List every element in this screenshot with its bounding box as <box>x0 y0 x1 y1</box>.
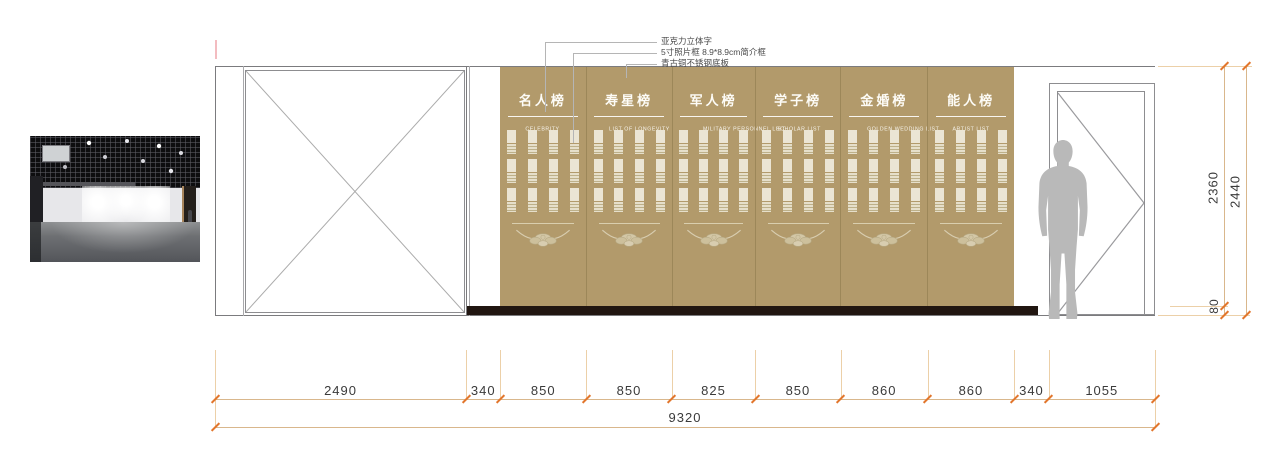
photo-slot <box>998 159 1007 172</box>
panel-title: 能人榜 <box>928 90 1014 109</box>
caption-plate <box>956 202 965 212</box>
photo-frame <box>804 159 813 183</box>
caption-plate <box>998 202 1007 212</box>
photo-slot <box>570 159 579 172</box>
caption-plate <box>699 202 708 212</box>
photo-frame <box>998 159 1007 183</box>
display-panel-3: 军人榜MILITARY PERSONNEL LIST <box>672 67 755 306</box>
caption-plate <box>890 173 899 183</box>
caption-plate <box>679 202 688 212</box>
photo-frame <box>679 159 688 183</box>
extension-line <box>1155 350 1156 427</box>
photo-frame <box>869 130 878 154</box>
photo-frame <box>635 130 644 154</box>
panel-title: 金婚榜 <box>841 90 927 109</box>
caption-plate <box>911 173 920 183</box>
panel-footer-rule <box>599 223 660 224</box>
caption-plate <box>614 202 623 212</box>
photo-slot <box>762 130 771 143</box>
panel-title-rule <box>508 116 578 117</box>
photo-frame <box>594 188 603 212</box>
caption-plate <box>911 202 920 212</box>
photo-slot <box>804 188 813 201</box>
segment-dimension-label: 860 <box>841 383 928 398</box>
photo-slot <box>783 188 792 201</box>
photo-slot <box>549 130 558 143</box>
photo-slot <box>977 159 986 172</box>
caption-plate <box>825 173 834 183</box>
segment-dimension-label: 850 <box>500 383 586 398</box>
photo-frame <box>656 188 665 212</box>
photo-frame <box>719 130 728 154</box>
photo-slot <box>762 159 771 172</box>
photo-frame <box>549 159 558 183</box>
photo-frame <box>977 130 986 154</box>
leader-line <box>626 64 627 78</box>
caption-plate <box>869 144 878 154</box>
caption-plate <box>679 144 688 154</box>
panel-subtitle: SCHOLAR LIST <box>756 119 841 130</box>
photo-frame <box>699 159 708 183</box>
wall-left-edge <box>215 66 216 316</box>
panel-subtitle: MILITARY PERSONNEL LIST <box>673 119 755 130</box>
leader-line <box>573 53 574 143</box>
caption-plate <box>635 173 644 183</box>
overall-dimension-line <box>215 427 1155 428</box>
panel-title-rule <box>680 116 747 117</box>
callout-acrylic-letters: 亚克力立体字 <box>661 37 712 46</box>
photo-slot <box>739 188 748 201</box>
photo-slot <box>679 159 688 172</box>
photo-slot <box>911 159 920 172</box>
stray-pink-mark <box>215 40 217 59</box>
photo-frame <box>719 188 728 212</box>
caption-plate <box>977 173 986 183</box>
photo-slot <box>804 130 813 143</box>
panel-footer-rule <box>512 223 574 224</box>
partition-line-a <box>466 66 467 316</box>
photo-frame <box>956 130 965 154</box>
photo-frame <box>594 130 603 154</box>
photo-slot <box>869 188 878 201</box>
photo-frame <box>679 130 688 154</box>
photo-frame <box>570 159 579 183</box>
photo-frame <box>911 130 920 154</box>
segment-dimension-label: 2490 <box>215 383 466 398</box>
caption-plate <box>635 202 644 212</box>
caption-plate <box>570 173 579 183</box>
caption-plate <box>804 202 813 212</box>
photo-slot <box>679 188 688 201</box>
caption-plate <box>825 144 834 154</box>
photo-slot <box>739 130 748 143</box>
photo-frame <box>804 188 813 212</box>
photo-slot <box>699 188 708 201</box>
photo-slot <box>528 159 537 172</box>
panel-footer-rule <box>768 223 829 224</box>
photo-slot <box>956 188 965 201</box>
photo-frame <box>956 159 965 183</box>
photo-frame <box>935 159 944 183</box>
photo-slot <box>699 159 708 172</box>
panel-photo-grid <box>679 130 748 213</box>
dimension-label-80: 80 <box>1207 291 1221 321</box>
photo-frame <box>890 159 899 183</box>
photo-frame <box>869 188 878 212</box>
floor-line <box>215 315 1155 316</box>
photo-frame <box>549 130 558 154</box>
photo-slot <box>869 159 878 172</box>
caption-plate <box>998 173 1007 183</box>
photo-slot <box>699 130 708 143</box>
caption-plate <box>528 144 537 154</box>
caption-plate <box>825 202 834 212</box>
photo-slot <box>614 130 623 143</box>
caption-plate <box>783 173 792 183</box>
photo-slot <box>656 130 665 143</box>
caption-plate <box>848 144 857 154</box>
caption-plate <box>594 173 603 183</box>
caption-plate <box>719 144 728 154</box>
photo-frame <box>762 130 771 154</box>
photo-slot <box>635 130 644 143</box>
baseboard-strip <box>467 306 1038 315</box>
photo-slot <box>890 130 899 143</box>
photo-wall-spotlights <box>82 186 170 222</box>
photo-frame <box>739 159 748 183</box>
caption-plate <box>848 202 857 212</box>
caption-plate <box>739 173 748 183</box>
photo-frame <box>935 130 944 154</box>
photo-slot <box>890 188 899 201</box>
photo-frame <box>570 130 579 154</box>
photo-slot <box>911 188 920 201</box>
photo-slot <box>570 188 579 201</box>
callout-bronze-plate: 青古铜不锈钢底板 <box>661 59 729 68</box>
photo-frame <box>699 130 708 154</box>
photo-slot <box>507 159 516 172</box>
caption-plate <box>956 144 965 154</box>
panel-footer-rule <box>940 223 1002 224</box>
cloud-ornament <box>515 226 571 247</box>
dimension-line-2360 <box>1224 66 1225 316</box>
caption-plate <box>977 202 986 212</box>
caption-plate <box>956 173 965 183</box>
caption-plate <box>570 202 579 212</box>
panel-title-rule <box>936 116 1006 117</box>
photo-slot <box>549 159 558 172</box>
photo-slot <box>614 188 623 201</box>
caption-plate <box>507 144 516 154</box>
panel-subtitle: GOLDEN WEDDING LIST <box>841 119 927 130</box>
elevation-sheet: 名人榜CELEBRITY寿星榜LIST OF LONGEVITY军人榜MILIT… <box>0 0 1280 456</box>
segment-dimension-label: 340 <box>466 383 500 398</box>
panel-title-rule <box>849 116 919 117</box>
photo-slot <box>635 188 644 201</box>
caption-plate <box>890 144 899 154</box>
photo-frame <box>825 130 834 154</box>
photo-slot <box>911 130 920 143</box>
photo-floor <box>30 222 200 262</box>
extension-line <box>1158 315 1250 316</box>
caption-plate <box>890 202 899 212</box>
photo-slot <box>783 159 792 172</box>
caption-plate <box>507 202 516 212</box>
callout-photo-frame: 5寸照片框 8.9*8.9cm简介框 <box>661 48 766 57</box>
photo-frame <box>528 159 537 183</box>
photo-slot <box>935 159 944 172</box>
photo-slot <box>528 130 537 143</box>
photo-frame <box>935 188 944 212</box>
photo-slot <box>998 130 1007 143</box>
panel-footer-rule <box>853 223 915 224</box>
panel-title: 学子榜 <box>756 90 841 109</box>
photo-frame <box>762 159 771 183</box>
photo-frame <box>507 159 516 183</box>
photo-frame <box>635 188 644 212</box>
caption-plate <box>783 144 792 154</box>
caption-plate <box>507 173 516 183</box>
segment-dimension-label: 850 <box>755 383 841 398</box>
caption-plate <box>699 144 708 154</box>
site-photo <box>30 136 200 262</box>
photo-frame <box>783 130 792 154</box>
photo-slot <box>656 188 665 201</box>
caption-plate <box>570 144 579 154</box>
caption-plate <box>935 173 944 183</box>
photo-frame <box>699 188 708 212</box>
cloud-ornament <box>770 226 826 247</box>
photo-frame <box>739 188 748 212</box>
photo-slot <box>762 188 771 201</box>
caption-plate <box>783 202 792 212</box>
photo-frame <box>998 188 1007 212</box>
photo-slot <box>956 130 965 143</box>
photo-frame <box>911 159 920 183</box>
caption-plate <box>911 144 920 154</box>
caption-plate <box>528 202 537 212</box>
photo-person <box>188 210 192 222</box>
display-panel-6: 能人榜ARTIST LIST <box>927 67 1014 306</box>
panel-subtitle: LIST OF LONGEVITY <box>587 119 672 130</box>
caption-plate <box>762 144 771 154</box>
photo-slot <box>890 159 899 172</box>
leader-line <box>573 53 657 54</box>
cloud-ornament <box>856 226 912 247</box>
panel-photo-grid <box>762 130 833 213</box>
photo-slot <box>783 130 792 143</box>
caption-plate <box>719 173 728 183</box>
photo-frame <box>848 130 857 154</box>
caption-plate <box>762 202 771 212</box>
caption-plate <box>594 202 603 212</box>
photo-grid-ceiling <box>30 136 200 188</box>
left-column-line <box>243 66 244 316</box>
display-panel-4: 学子榜SCHOLAR LIST <box>755 67 841 306</box>
segment-dimension-label: 860 <box>928 383 1015 398</box>
photo-slot <box>570 130 579 143</box>
photo-frame <box>614 188 623 212</box>
photo-frame <box>804 130 813 154</box>
segment-dimension-label: 825 <box>672 383 755 398</box>
photo-frame <box>956 188 965 212</box>
caption-plate <box>699 173 708 183</box>
photo-slot <box>848 159 857 172</box>
caption-plate <box>935 144 944 154</box>
segment-dimension-label: 850 <box>586 383 672 398</box>
photo-frame <box>890 188 899 212</box>
photo-frame <box>783 188 792 212</box>
photo-floor-shadow <box>30 222 41 262</box>
crossed-out-panel <box>245 70 465 313</box>
photo-slot <box>935 188 944 201</box>
caption-plate <box>739 144 748 154</box>
photo-slot <box>679 130 688 143</box>
caption-plate <box>869 173 878 183</box>
cloud-ornament <box>601 226 657 247</box>
leader-line <box>545 42 657 43</box>
photo-frame <box>635 159 644 183</box>
display-panel-2: 寿星榜LIST OF LONGEVITY <box>586 67 672 306</box>
photo-slot <box>719 188 728 201</box>
panel-title-rule <box>763 116 832 117</box>
photo-ceiling-lights <box>30 136 32 138</box>
cross-lines <box>246 71 464 312</box>
photo-slot <box>998 188 1007 201</box>
photo-slot <box>825 159 834 172</box>
photo-slot <box>935 130 944 143</box>
photo-slot <box>594 130 603 143</box>
photo-frame <box>825 188 834 212</box>
photo-frame <box>656 159 665 183</box>
photo-slot <box>594 188 603 201</box>
photo-dark-opening <box>30 176 43 222</box>
photo-slot <box>869 130 878 143</box>
panel-photo-grid <box>507 130 579 213</box>
display-wall: 名人榜CELEBRITY寿星榜LIST OF LONGEVITY军人榜MILIT… <box>500 67 1014 306</box>
caption-plate <box>549 144 558 154</box>
photo-frame <box>825 159 834 183</box>
panel-title: 寿星榜 <box>587 90 672 109</box>
photo-slot <box>739 159 748 172</box>
photo-frame <box>507 188 516 212</box>
panel-title-rule <box>594 116 663 117</box>
photo-frame <box>783 159 792 183</box>
photo-frame <box>739 130 748 154</box>
photo-frame <box>848 159 857 183</box>
caption-plate <box>804 173 813 183</box>
photo-slot <box>507 188 516 201</box>
caption-plate <box>549 202 558 212</box>
caption-plate <box>739 202 748 212</box>
caption-plate <box>656 144 665 154</box>
photo-frame <box>869 159 878 183</box>
photo-slot <box>956 159 965 172</box>
dimension-label-2440: 2440 <box>1228 162 1243 222</box>
caption-plate <box>762 173 771 183</box>
caption-plate <box>614 144 623 154</box>
photo-slot <box>977 188 986 201</box>
cloud-ornament <box>686 226 742 247</box>
caption-plate <box>656 202 665 212</box>
photo-slot <box>507 130 516 143</box>
caption-plate <box>679 173 688 183</box>
photo-frame <box>528 188 537 212</box>
photo-frame <box>679 188 688 212</box>
photo-frame <box>848 188 857 212</box>
extension-line <box>1158 66 1252 67</box>
photo-slot <box>635 159 644 172</box>
photo-frame <box>570 188 579 212</box>
photo-ac-vent <box>42 145 70 162</box>
panel-title: 军人榜 <box>673 90 755 109</box>
photo-slot <box>977 130 986 143</box>
leader-line <box>626 64 657 65</box>
caption-plate <box>594 144 603 154</box>
photo-slot <box>719 159 728 172</box>
panel-photo-grid <box>594 130 665 213</box>
photo-frame <box>528 130 537 154</box>
leader-line <box>545 42 546 112</box>
caption-plate <box>977 144 986 154</box>
segment-dimension-label: 1055 <box>1049 383 1155 398</box>
photo-slot <box>594 159 603 172</box>
photo-doorway <box>182 186 196 223</box>
partition-line-b <box>469 66 470 316</box>
total-dimension-label: 9320 <box>215 410 1155 425</box>
panel-footer-rule <box>684 223 743 224</box>
photo-frame <box>762 188 771 212</box>
panel-subtitle: ARTIST LIST <box>928 119 1014 130</box>
dimension-label-2360: 2360 <box>1206 158 1221 218</box>
photo-frame <box>594 159 603 183</box>
caption-plate <box>549 173 558 183</box>
cloud-ornament <box>943 226 999 247</box>
photo-frame <box>977 159 986 183</box>
caption-plate <box>614 173 623 183</box>
photo-slot <box>804 159 813 172</box>
photo-slot <box>848 130 857 143</box>
photo-frame <box>549 188 558 212</box>
caption-plate <box>869 202 878 212</box>
photo-slot <box>825 188 834 201</box>
photo-frame <box>614 130 623 154</box>
segment-dimension-label: 340 <box>1014 383 1048 398</box>
dimension-line-2440 <box>1246 66 1247 316</box>
human-silhouette <box>1032 140 1094 319</box>
photo-slot <box>528 188 537 201</box>
panel-photo-grid <box>848 130 920 213</box>
photo-frame <box>977 188 986 212</box>
caption-plate <box>998 144 1007 154</box>
panel-photo-grid <box>935 130 1007 213</box>
photo-slot <box>825 130 834 143</box>
photo-frame <box>911 188 920 212</box>
caption-plate <box>656 173 665 183</box>
photo-frame <box>719 159 728 183</box>
caption-plate <box>635 144 644 154</box>
photo-frame <box>890 130 899 154</box>
display-panel-5: 金婚榜GOLDEN WEDDING LIST <box>840 67 927 306</box>
photo-slot <box>549 188 558 201</box>
caption-plate <box>804 144 813 154</box>
photo-frame <box>998 130 1007 154</box>
caption-plate <box>719 202 728 212</box>
photo-slot <box>656 159 665 172</box>
caption-plate <box>935 202 944 212</box>
caption-plate <box>848 173 857 183</box>
photo-frame <box>614 159 623 183</box>
